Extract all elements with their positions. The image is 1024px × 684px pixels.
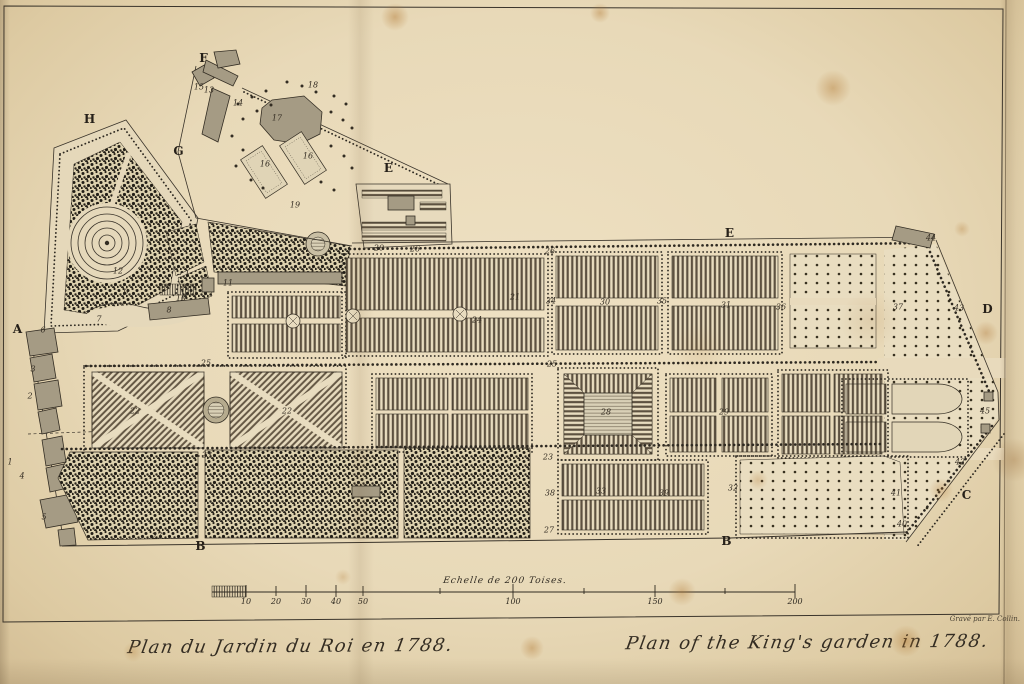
southeast-plots: [558, 456, 908, 538]
plate-title-french: Plan du Jardin du Roi en 1788.: [126, 635, 455, 658]
south-woodland: [58, 448, 530, 540]
parterre-quarters: [84, 366, 346, 456]
scale-bar: [212, 584, 795, 598]
north-buildings: [192, 50, 240, 142]
north-orchard-plots: [790, 254, 876, 348]
page-fold-edge: [1004, 0, 1006, 684]
greenhouse-garden: [356, 184, 452, 248]
plate-title-english: Plan of the King's garden in 1788.: [624, 631, 991, 655]
engraver-credit: Gravé par E. Collin.: [936, 615, 1020, 623]
engraved-plate-page: ABBCDEEFGH 12345678910111213141516161718…: [0, 0, 1024, 684]
scale-bar-caption: Echelle de 200 Toises.: [442, 576, 567, 586]
